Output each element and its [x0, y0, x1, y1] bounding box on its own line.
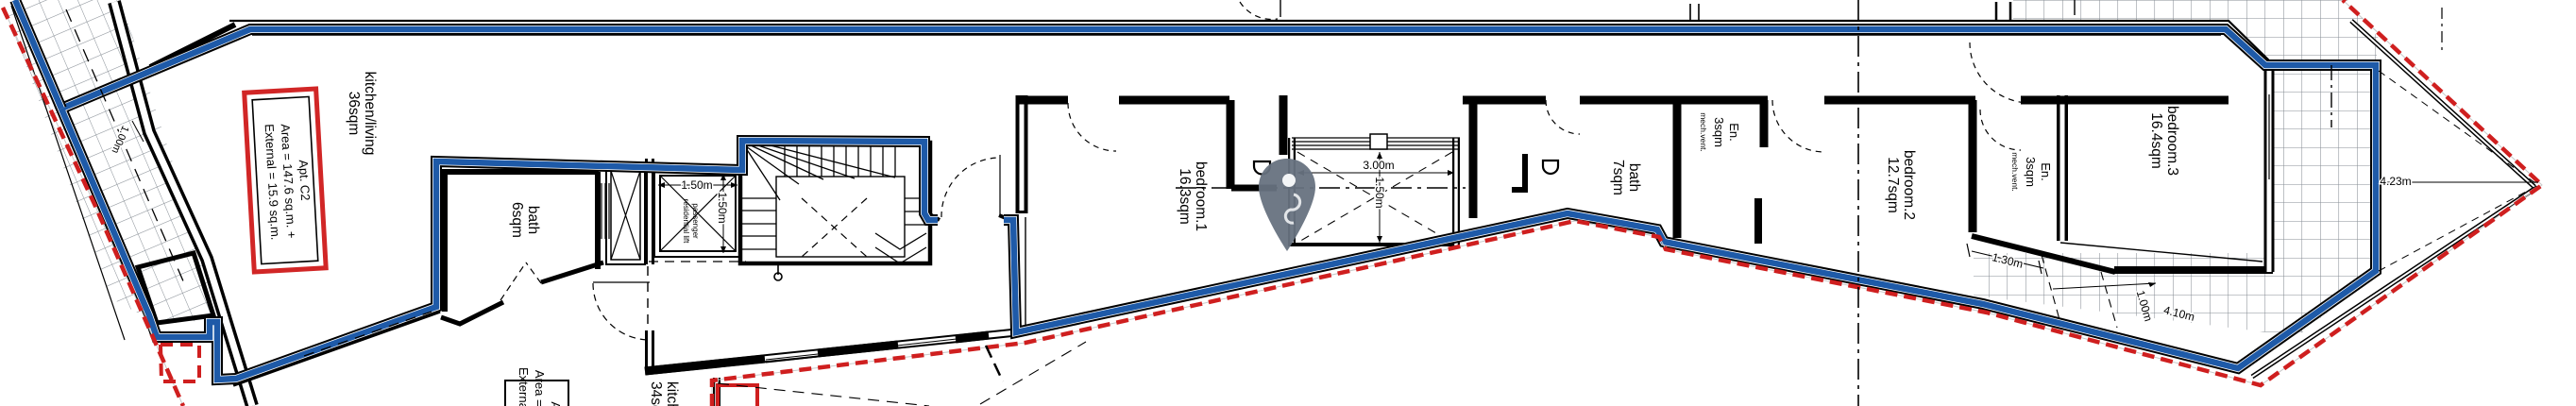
svg-text:12.7sqm: 12.7sqm — [1885, 157, 1901, 212]
svg-text:Apt. C2: Apt. C2 — [297, 160, 313, 201]
svg-text:Area = 123.4 sq.m.: Area = 123.4 sq.m. — [533, 370, 547, 406]
svg-text:bedroom.1: bedroom.1 — [1193, 161, 1209, 231]
svg-text:3sqm: 3sqm — [2024, 157, 2038, 187]
svg-text:bath: bath — [525, 206, 541, 234]
svg-text:36sqm: 36sqm — [346, 92, 362, 136]
svg-text:Apt. C1: Apt. C1 — [549, 401, 563, 406]
svg-text:1.50m: 1.50m — [1373, 177, 1386, 208]
svg-text:En.: En. — [2039, 162, 2053, 181]
svg-text:4.23m: 4.23m — [2380, 175, 2411, 188]
svg-text:1.50m: 1.50m — [681, 178, 712, 192]
svg-text:kitchen/living: kitchen/living — [362, 72, 378, 156]
svg-text:3.00m: 3.00m — [1363, 159, 1394, 172]
svg-text:bedroom.2: bedroom.2 — [1901, 150, 1917, 220]
svg-text:mech.vent.: mech.vent. — [2010, 152, 2020, 192]
svg-text:bath: bath — [1626, 163, 1642, 192]
svg-text:residential lift: residential lift — [682, 199, 690, 244]
svg-text:passenger: passenger — [691, 203, 700, 239]
svg-text:kitchen/dining: kitchen/dining — [664, 381, 680, 406]
svg-text:16.4sqm: 16.4sqm — [2148, 112, 2164, 168]
svg-text:7sqm: 7sqm — [1610, 160, 1626, 195]
svg-text:bedroom.3: bedroom.3 — [2164, 106, 2180, 176]
svg-text:6sqm: 6sqm — [509, 202, 525, 238]
svg-text:1.50m: 1.50m — [716, 192, 729, 223]
svg-text:16.3sqm: 16.3sqm — [1177, 168, 1193, 224]
svg-text:En.: En. — [1727, 123, 1741, 142]
svg-text:External = 5.4 sq.m.: External = 5.4 sq.m. — [517, 367, 531, 406]
svg-text:mech.vent.: mech.vent. — [1699, 112, 1708, 152]
svg-text:3sqm: 3sqm — [1712, 117, 1726, 147]
svg-text:34sqm: 34sqm — [648, 381, 664, 406]
